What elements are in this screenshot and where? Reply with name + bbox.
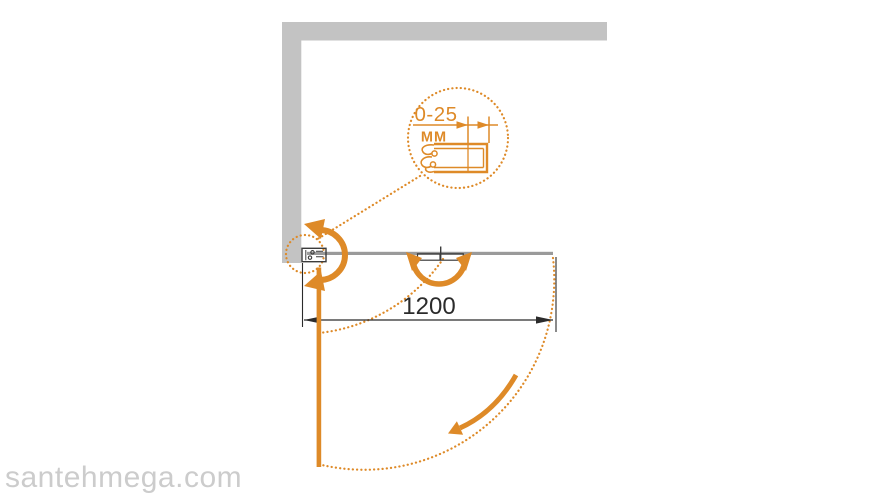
- swing-path-arc: [322, 258, 554, 470]
- profile-cross-section: [421, 144, 487, 172]
- fold-rotation-arrow: [406, 252, 472, 284]
- bath-screen-installation-diagram: santehmega.com 1200: [0, 0, 880, 500]
- width-dimension-label: 1200: [402, 293, 455, 320]
- detail-range-label: 0-25: [414, 103, 457, 126]
- detail-callout: 0-25 ММ: [408, 88, 508, 188]
- bath-edge-line: [317, 268, 322, 468]
- watermark: santehmega.com: [5, 461, 242, 494]
- swing-direction-arrow: [448, 375, 516, 435]
- diagram-drawing: santehmega.com 1200: [0, 0, 880, 500]
